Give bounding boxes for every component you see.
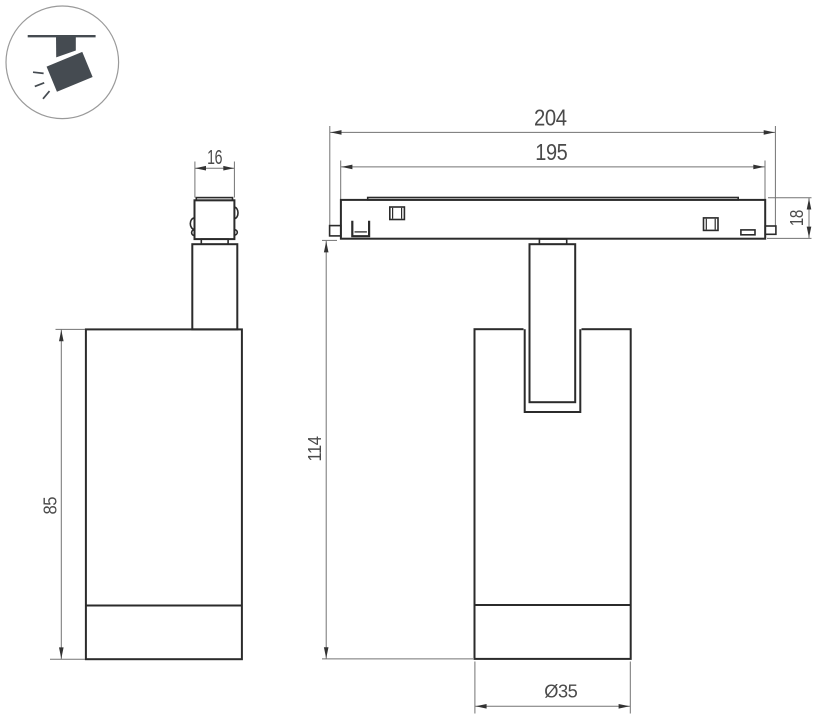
svg-text:114: 114 bbox=[304, 436, 325, 461]
svg-text:204: 204 bbox=[534, 105, 567, 131]
svg-text:Ø35: Ø35 bbox=[544, 680, 577, 701]
svg-text:18: 18 bbox=[786, 210, 807, 226]
svg-text:16: 16 bbox=[207, 146, 222, 169]
svg-text:85: 85 bbox=[40, 497, 61, 515]
svg-text:195: 195 bbox=[535, 139, 567, 165]
